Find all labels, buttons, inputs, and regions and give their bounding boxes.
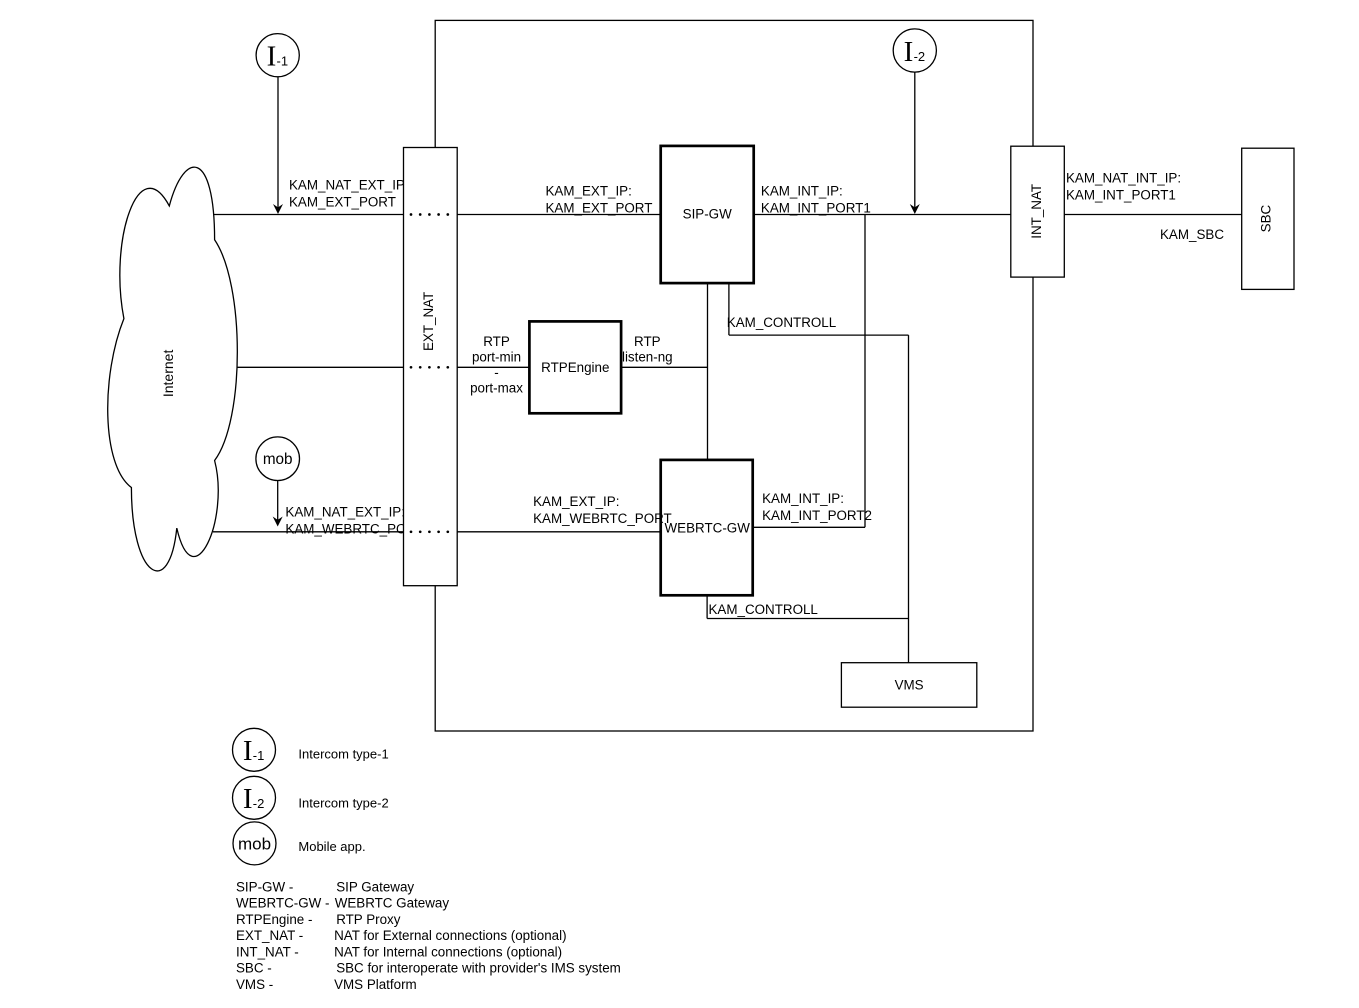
svg-text:SBC -: SBC - (236, 961, 272, 976)
svg-text:RTP: RTP (634, 334, 661, 349)
svg-text:KAM_NAT_INT_IP:: KAM_NAT_INT_IP: (1066, 170, 1181, 185)
svg-text:listen-ng: listen-ng (622, 350, 673, 365)
svg-text:VMS -: VMS - (236, 977, 273, 992)
svg-text:I: I (243, 735, 253, 767)
svg-text:port-max: port-max (470, 381, 523, 396)
svg-text:INT_NAT -: INT_NAT - (236, 944, 299, 959)
svg-text:SBC: SBC (1258, 205, 1273, 233)
svg-text:RTPEngine: RTPEngine (541, 360, 609, 375)
svg-text:NAT for External connections (: NAT for External connections (optional) (334, 928, 566, 943)
svg-text:Intercom type-1: Intercom type-1 (298, 746, 388, 761)
svg-text:Intercom type-2: Intercom type-2 (298, 795, 388, 810)
svg-text:-1: -1 (253, 748, 265, 763)
svg-text:VMS: VMS (895, 678, 924, 693)
svg-text:I: I (243, 783, 253, 815)
svg-text:SBC for interoperate with prov: SBC for interoperate with provider's IMS… (336, 961, 621, 976)
svg-text:Internet: Internet (160, 350, 176, 398)
svg-text:WEBRTC Gateway: WEBRTC Gateway (335, 896, 450, 911)
svg-text:I: I (267, 41, 277, 73)
svg-text:KAM_CONTROLL: KAM_CONTROLL (709, 602, 818, 617)
svg-text:WEBRTC-GW -: WEBRTC-GW - (236, 896, 329, 911)
svg-text:KAM_EXT_IP:: KAM_EXT_IP: (546, 184, 632, 199)
svg-text:WEBRTC-GW: WEBRTC-GW (665, 521, 751, 536)
svg-text:SIP-GW -: SIP-GW - (236, 880, 293, 895)
svg-text:RTPEngine -: RTPEngine - (236, 912, 312, 927)
svg-text:I: I (904, 36, 914, 68)
svg-text:KAM_INT_PORT1: KAM_INT_PORT1 (1066, 187, 1176, 202)
svg-text:KAM_NAT_EXT_IP:: KAM_NAT_EXT_IP: (285, 505, 405, 520)
svg-text:SIP-GW: SIP-GW (683, 207, 732, 222)
svg-text:INT_NAT: INT_NAT (1029, 184, 1044, 239)
svg-text:VMS Platform: VMS Platform (334, 977, 417, 992)
svg-text:RTP: RTP (483, 334, 510, 349)
svg-text:-2: -2 (914, 49, 926, 64)
svg-text:KAM_SBC: KAM_SBC (1160, 227, 1224, 242)
svg-text:mob: mob (263, 451, 293, 468)
svg-text:SIP Gateway: SIP Gateway (336, 880, 414, 895)
svg-text:KAM_EXT_PORT: KAM_EXT_PORT (546, 201, 653, 216)
svg-text:KAM_EXT_PORT: KAM_EXT_PORT (289, 194, 396, 209)
svg-text:KAM_INT_IP:: KAM_INT_IP: (762, 491, 844, 506)
svg-text:NAT for Internal connections (: NAT for Internal connections (optional) (334, 944, 562, 959)
svg-text:mob: mob (238, 834, 271, 853)
svg-text:KAM_CONTROLL: KAM_CONTROLL (727, 315, 836, 330)
svg-text:KAM_INT_IP:: KAM_INT_IP: (761, 184, 843, 199)
svg-text:-1: -1 (277, 54, 289, 69)
svg-text:EXT_NAT -: EXT_NAT - (236, 928, 303, 943)
svg-text:RTP Proxy: RTP Proxy (336, 912, 401, 927)
svg-text:EXT_NAT: EXT_NAT (421, 292, 436, 351)
svg-text:KAM_WEBRTC_PORT: KAM_WEBRTC_PORT (533, 511, 672, 526)
svg-text:Mobile app.: Mobile app. (298, 839, 365, 854)
svg-text:-2: -2 (253, 796, 265, 811)
svg-text:port-min: port-min (472, 350, 521, 365)
svg-text:KAM_INT_PORT2: KAM_INT_PORT2 (762, 508, 872, 523)
svg-text:-: - (494, 365, 498, 380)
svg-text:KAM_EXT_IP:: KAM_EXT_IP: (533, 494, 619, 509)
svg-text:KAM_INT_PORT1: KAM_INT_PORT1 (761, 201, 871, 216)
svg-text:KAM_NAT_EXT_IP:: KAM_NAT_EXT_IP: (289, 177, 409, 192)
